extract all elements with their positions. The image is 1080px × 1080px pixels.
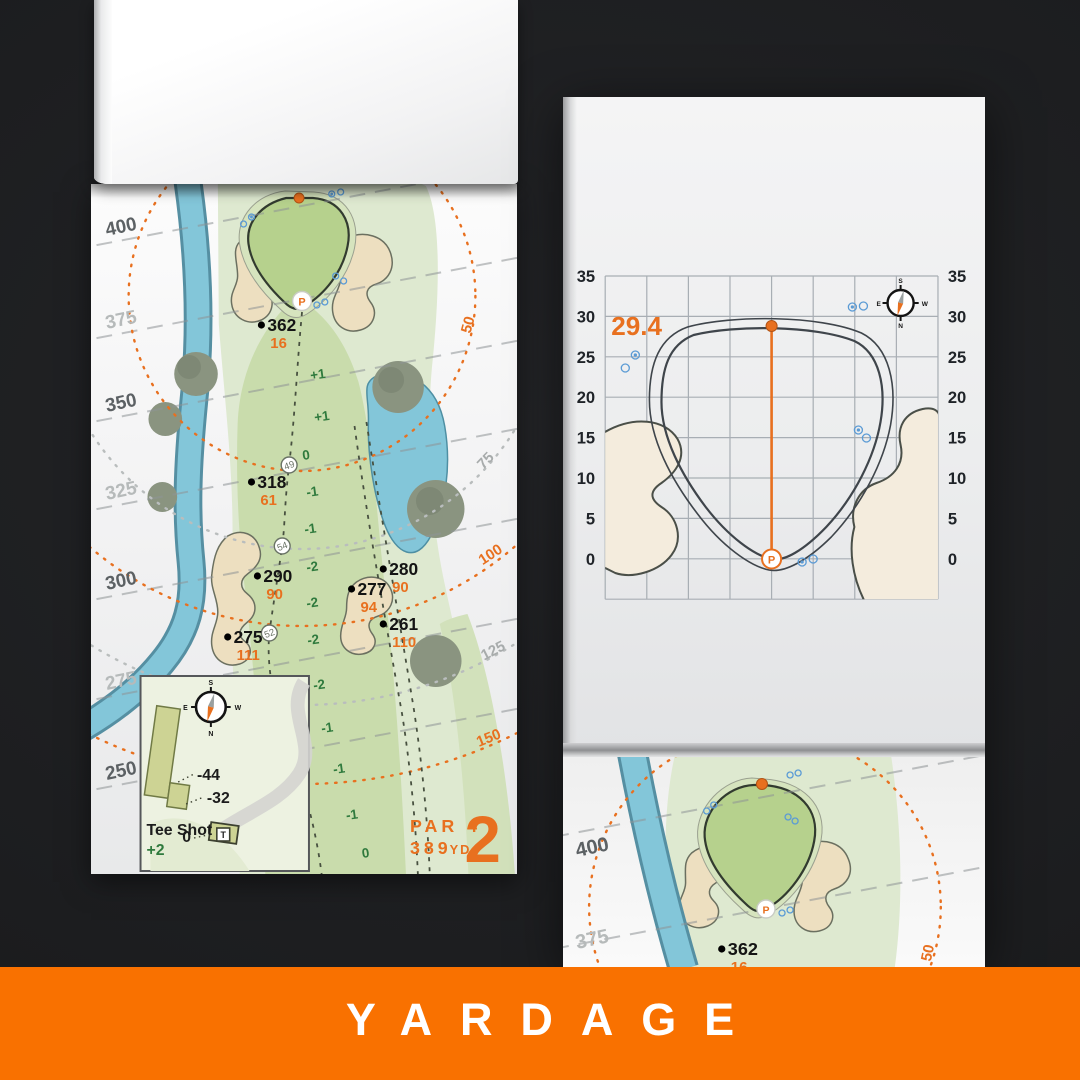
- tick-right-5: 5: [948, 509, 957, 528]
- yardage-book-left: 50 75 100 125 150 400 375 350 325 300 27…: [88, 0, 520, 876]
- svg-text:94: 94: [360, 599, 377, 616]
- svg-text:318: 318: [257, 472, 286, 492]
- tick-right-0: 0: [948, 550, 957, 569]
- elevation-1: +1: [313, 408, 331, 425]
- green-detail-chart: P 29.4 35 30 25 20 15 10 5 0 35 30 25 20: [563, 97, 985, 749]
- hole-map-page: 50 75 100 125 150 400 375 350 325 300 27…: [91, 184, 517, 874]
- tick-right-15: 15: [948, 429, 966, 448]
- pin-marker: P: [293, 292, 312, 311]
- scale-label-300: 300: [104, 568, 139, 595]
- tick-right-30: 30: [948, 307, 966, 326]
- inset-score: +2: [146, 842, 164, 859]
- scale-label-375: 375: [574, 925, 611, 953]
- yardage-book-right: P 29.4 35 30 25 20 15 10 5 0 35 30 25 20: [563, 97, 985, 967]
- svg-text:261: 261: [389, 614, 418, 634]
- tick-left-10: 10: [577, 469, 595, 488]
- tick-left-20: 20: [577, 388, 595, 407]
- yardage-banner: YARDAGE: [0, 967, 1080, 1080]
- hole-map-illustration: 50 75 100 125 150 400 375 350 325 300 27…: [91, 184, 517, 874]
- scale-label-375: 375: [104, 307, 139, 334]
- tick-left-5: 5: [586, 509, 595, 528]
- arc-label-50: 50: [918, 943, 938, 963]
- elevation-5: -2: [305, 558, 319, 575]
- arc-label-100: 100: [476, 541, 506, 569]
- next-hole-page: 50 400 375 P 362 16: [563, 757, 985, 967]
- svg-text:111: 111: [237, 647, 260, 664]
- svg-text:362: 362: [267, 315, 296, 335]
- svg-text:S: S: [209, 680, 214, 687]
- tick-right-20: 20: [948, 388, 966, 407]
- elevation-6: -2: [305, 594, 319, 611]
- river: [91, 184, 198, 730]
- green-detail-page: P 29.4 35 30 25 20 15 10 5 0 35 30 25 20: [563, 97, 985, 749]
- blank-flipped-page: [94, 0, 518, 184]
- tick-right-25: 25: [948, 348, 966, 367]
- svg-text:90: 90: [266, 586, 283, 603]
- svg-text:290: 290: [263, 566, 292, 586]
- tick-right-35: 35: [948, 267, 966, 286]
- elevation-7: -2: [306, 631, 320, 648]
- svg-text:E: E: [876, 301, 881, 308]
- inset-mid-marker: -32: [207, 790, 230, 807]
- hole-yardage: 389: [410, 838, 452, 858]
- arc-label-75: 75: [474, 449, 498, 473]
- svg-text:E: E: [183, 705, 188, 712]
- tee-shot-inset: S N W E -44 -32 0 T Tee Shot +2: [141, 676, 309, 871]
- scale-label-250: 250: [104, 758, 139, 785]
- svg-text:277: 277: [357, 579, 386, 599]
- svg-text:110: 110: [392, 634, 416, 651]
- svg-text:W: W: [922, 301, 929, 308]
- scale-label-325: 325: [104, 478, 139, 505]
- svg-text:N: N: [898, 323, 903, 330]
- arc-label-50: 50: [458, 315, 479, 336]
- svg-text:280: 280: [389, 559, 418, 579]
- depth-dot: [766, 321, 777, 332]
- svg-text:90: 90: [392, 579, 409, 596]
- svg-text:T: T: [221, 830, 227, 840]
- svg-text:N: N: [208, 731, 213, 738]
- svg-text:P: P: [768, 555, 775, 567]
- arc-label-125: 125: [478, 638, 508, 665]
- scale-label-400: 400: [574, 833, 611, 861]
- elevation-0: +1: [309, 366, 327, 383]
- next-hole-illustration: 50 400 375 P 362 16: [563, 757, 985, 967]
- svg-text:16: 16: [270, 335, 287, 352]
- tick-left-0: 0: [586, 550, 595, 569]
- hole-number: 2: [464, 803, 500, 874]
- green-pin-marker: P: [762, 550, 781, 569]
- tee-marker-icon: T: [209, 822, 239, 844]
- inset-back-marker: -44: [197, 767, 220, 784]
- svg-text:362: 362: [728, 939, 758, 959]
- page-curl: [94, 0, 112, 184]
- depth-measurement: 29.4: [611, 311, 662, 341]
- tick-left-15: 15: [577, 429, 595, 448]
- tick-left-30: 30: [577, 307, 595, 326]
- svg-text:275: 275: [234, 627, 263, 647]
- product-mockup-stage: 50 75 100 125 150 400 375 350 325 300 27…: [0, 0, 1080, 1080]
- elevation-8: -2: [312, 676, 326, 693]
- svg-text:S: S: [898, 278, 903, 285]
- scale-label-350: 350: [104, 390, 139, 417]
- svg-text:W: W: [235, 705, 242, 712]
- inset-title: Tee Shot: [146, 822, 212, 839]
- tick-right-10: 10: [948, 469, 966, 488]
- tick-left-25: 25: [577, 348, 595, 367]
- aim-dot: [756, 779, 767, 790]
- svg-text:16: 16: [731, 959, 748, 967]
- svg-text:P: P: [762, 905, 769, 917]
- svg-text:61: 61: [260, 492, 277, 509]
- banner-title: YARDAGE: [318, 994, 762, 1046]
- tick-left-35: 35: [577, 267, 595, 286]
- scale-label-400: 400: [104, 214, 139, 241]
- svg-text:P: P: [298, 296, 305, 308]
- pin-marker: P: [757, 900, 775, 918]
